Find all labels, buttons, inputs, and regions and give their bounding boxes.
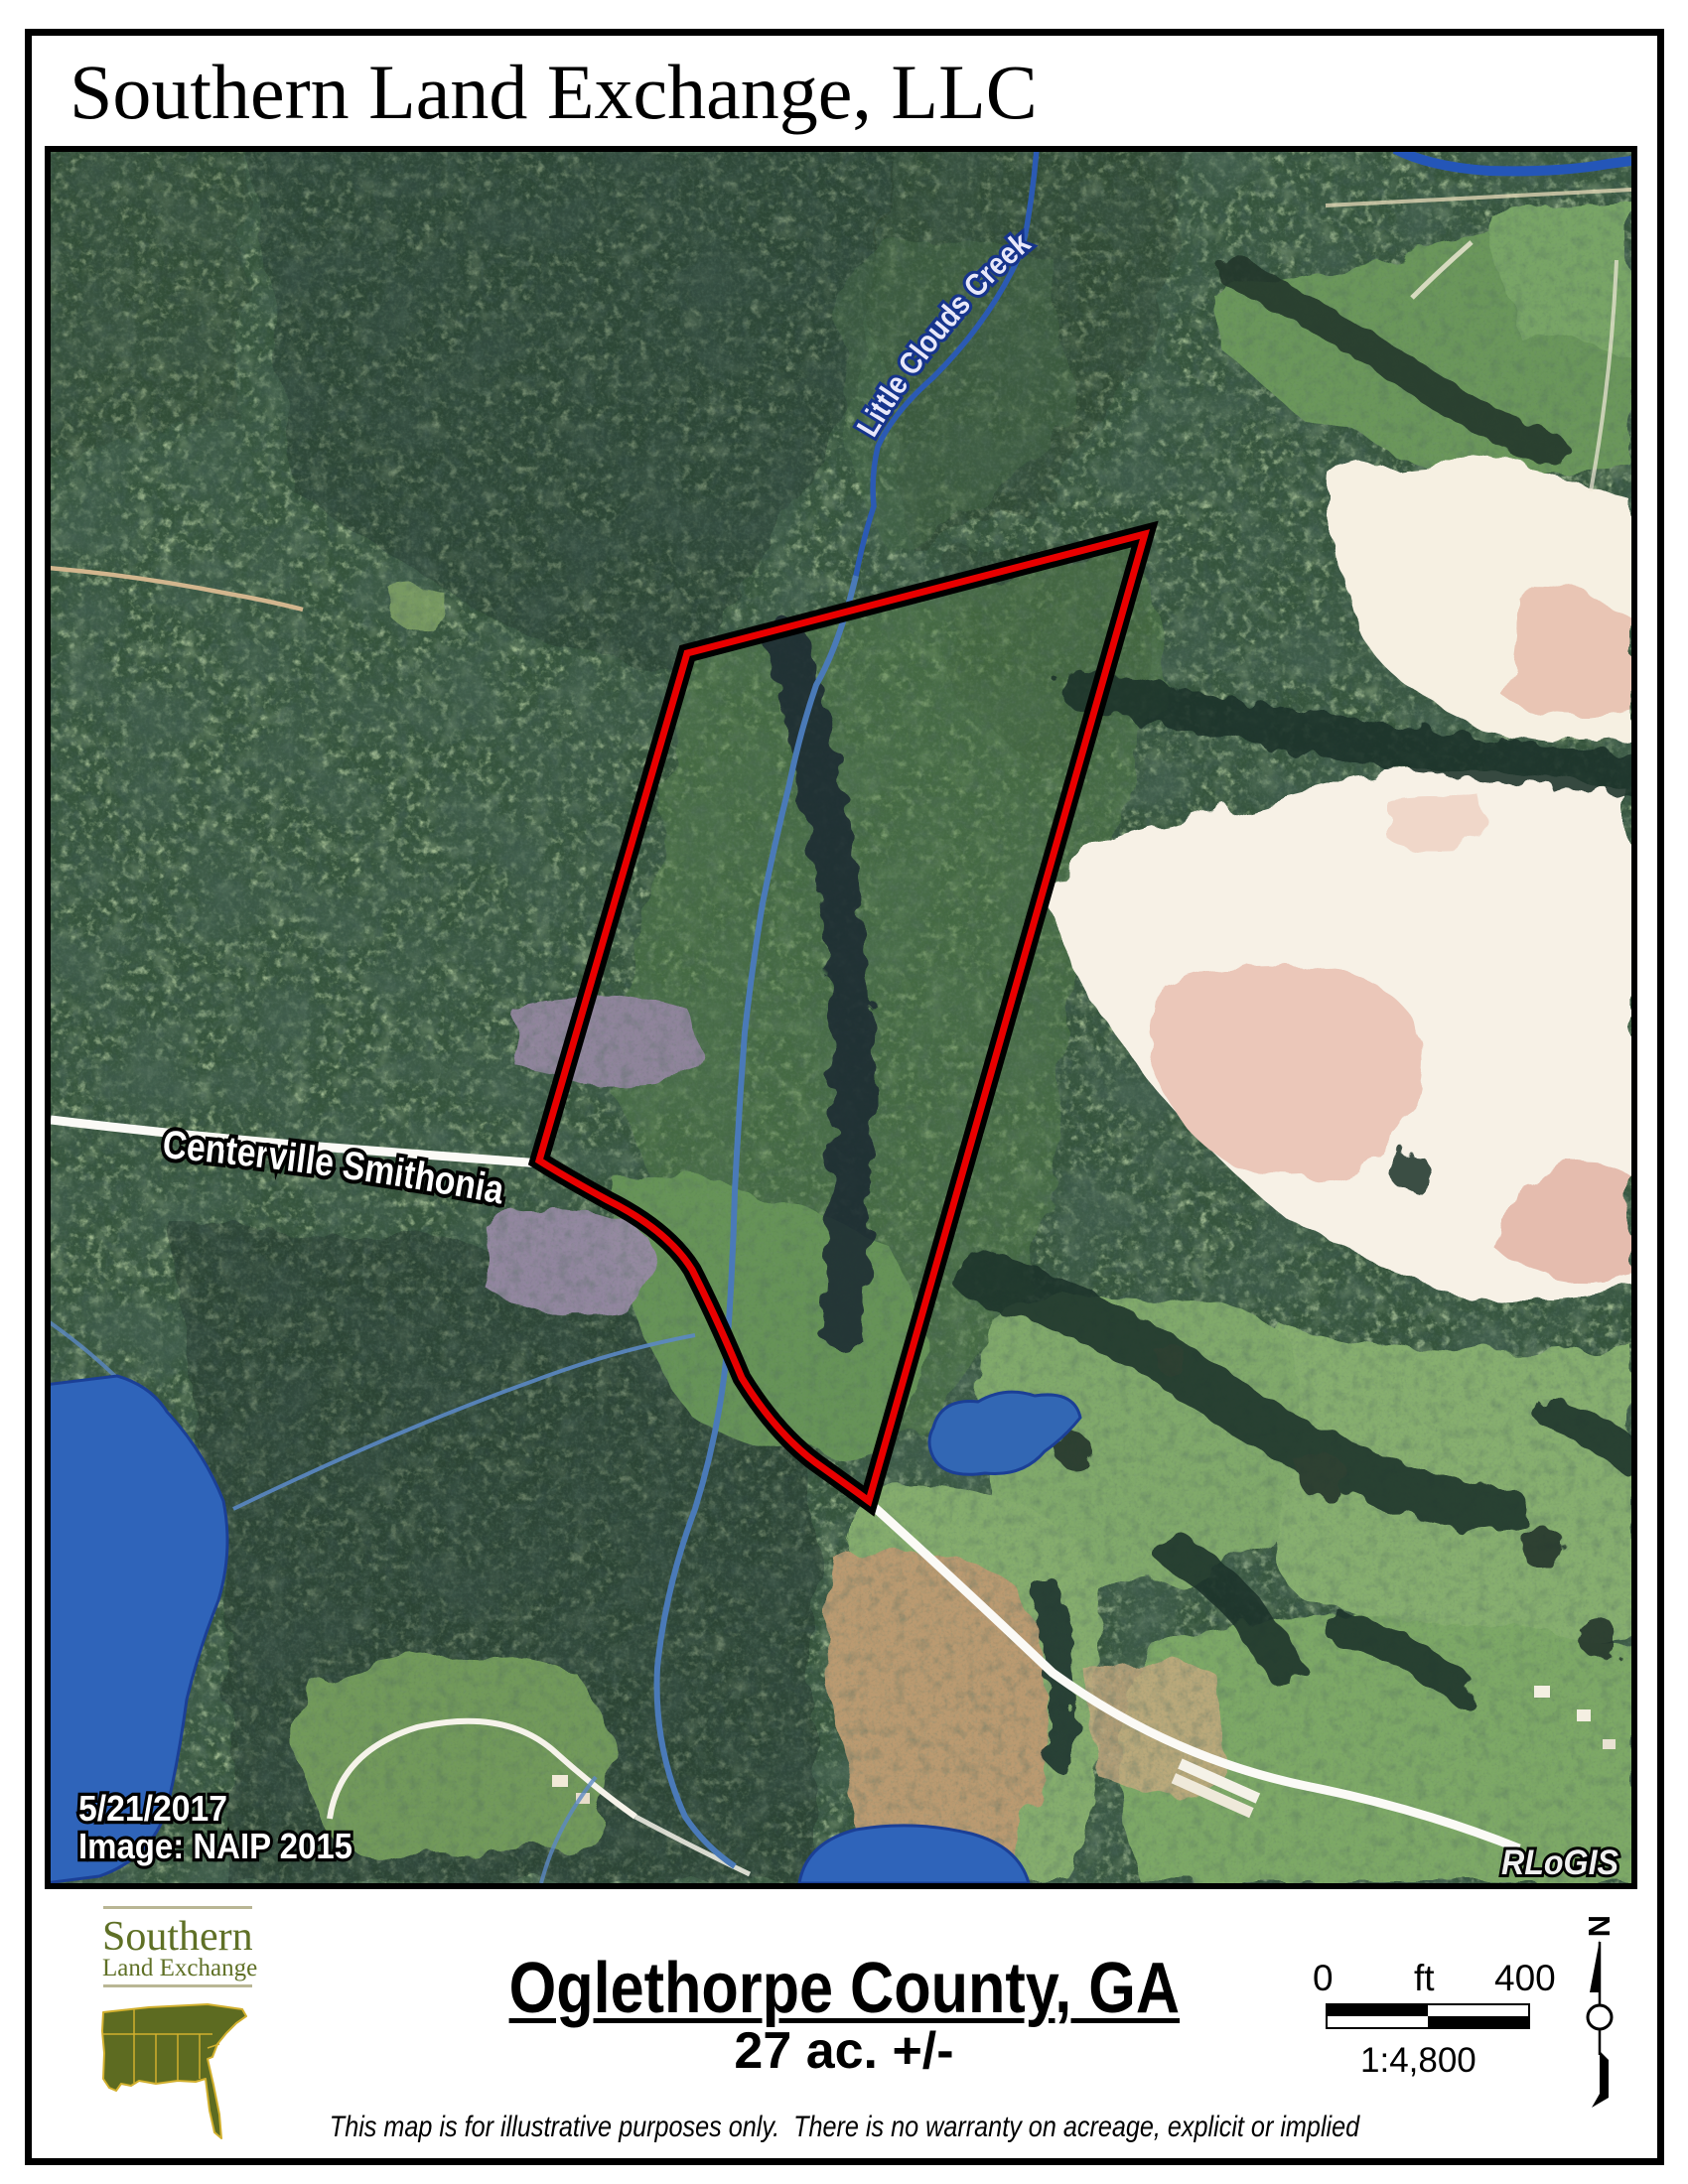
svg-text:N: N (1582, 1915, 1617, 1937)
svg-text:Image: NAIP 2015: Image: NAIP 2015 (78, 1826, 352, 1866)
svg-text:5/21/2017: 5/21/2017 (78, 1788, 227, 1829)
svg-text:RLoGIS: RLoGIS (1501, 1843, 1618, 1882)
